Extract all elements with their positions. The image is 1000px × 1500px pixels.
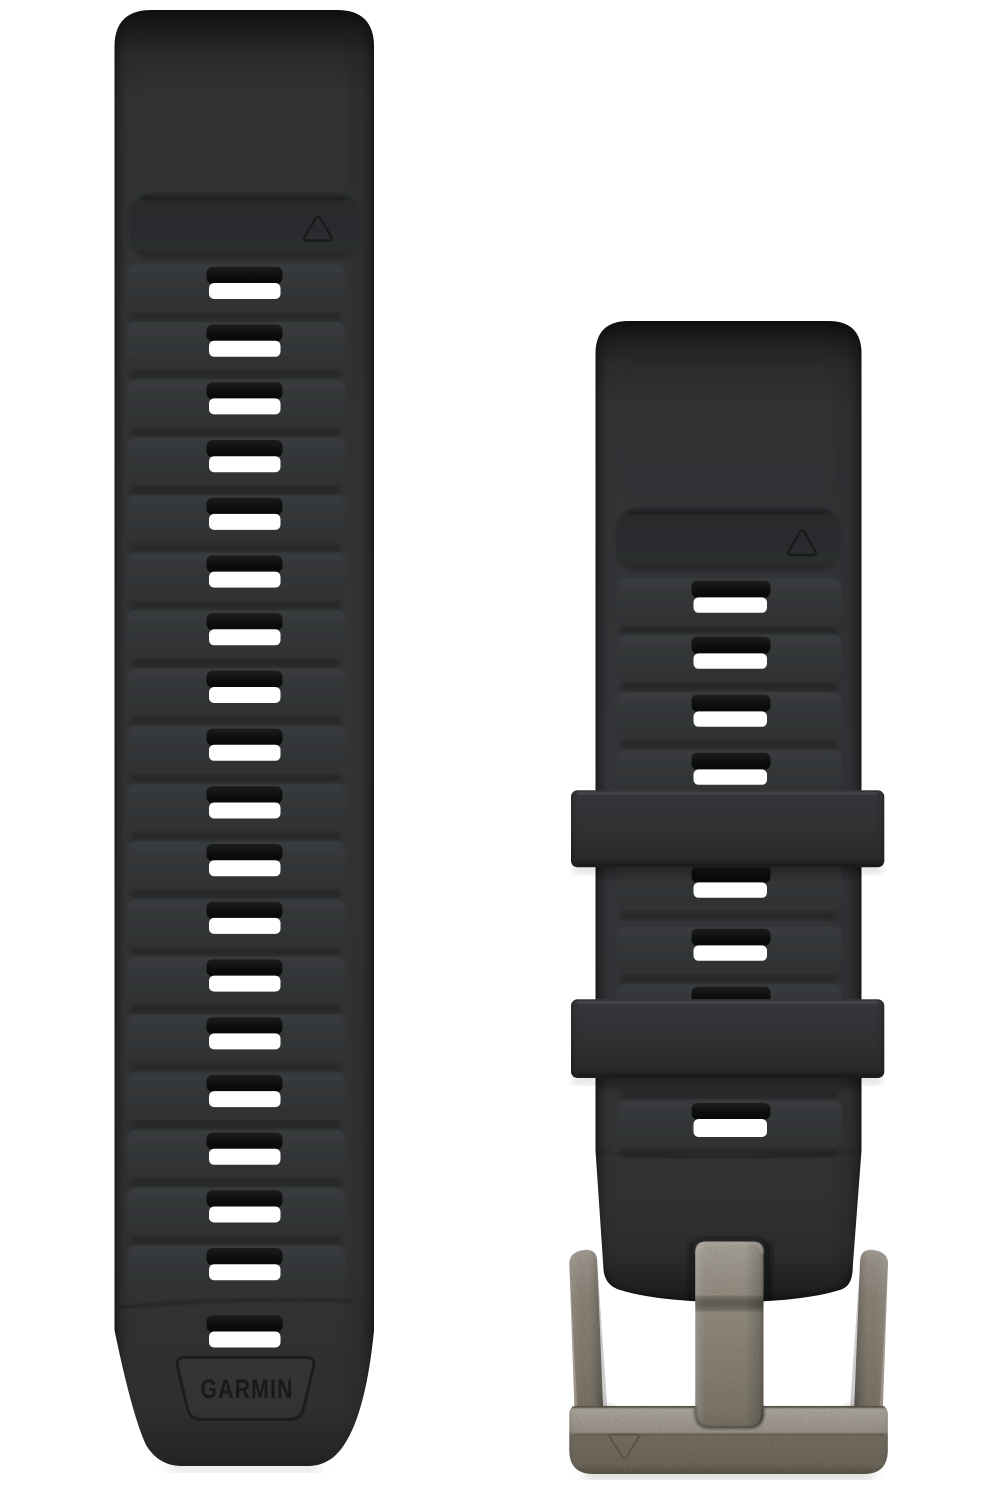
svg-text:GARMIN: GARMIN xyxy=(200,1375,293,1405)
